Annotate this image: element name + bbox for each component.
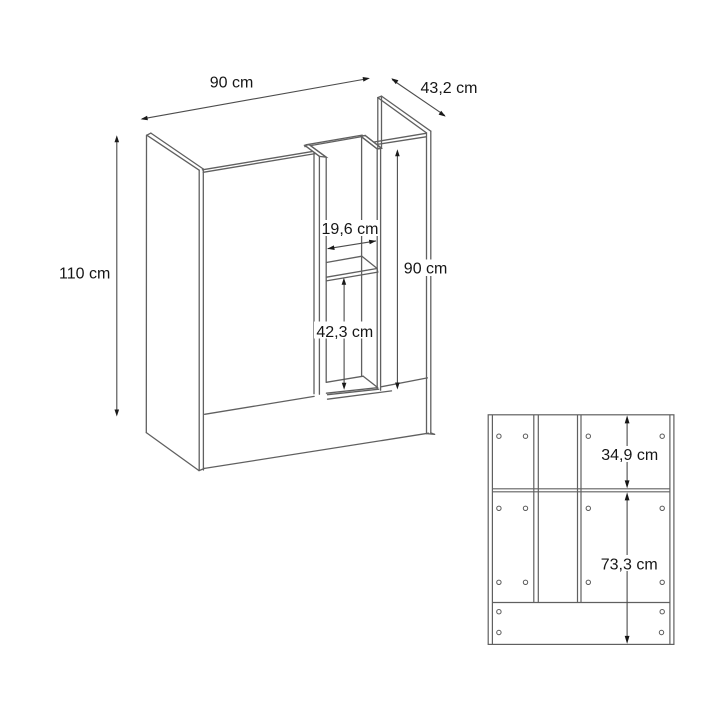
svg-text:19,6 cm: 19,6 cm <box>322 221 379 238</box>
svg-text:110 cm: 110 cm <box>59 266 110 283</box>
svg-text:90 cm: 90 cm <box>210 75 254 92</box>
svg-text:34,9 cm: 34,9 cm <box>601 447 658 464</box>
svg-text:43,2 cm: 43,2 cm <box>421 80 478 97</box>
svg-text:90 cm: 90 cm <box>404 261 448 278</box>
svg-text:42,3 cm: 42,3 cm <box>316 324 373 341</box>
svg-text:73,3 cm: 73,3 cm <box>601 556 658 573</box>
